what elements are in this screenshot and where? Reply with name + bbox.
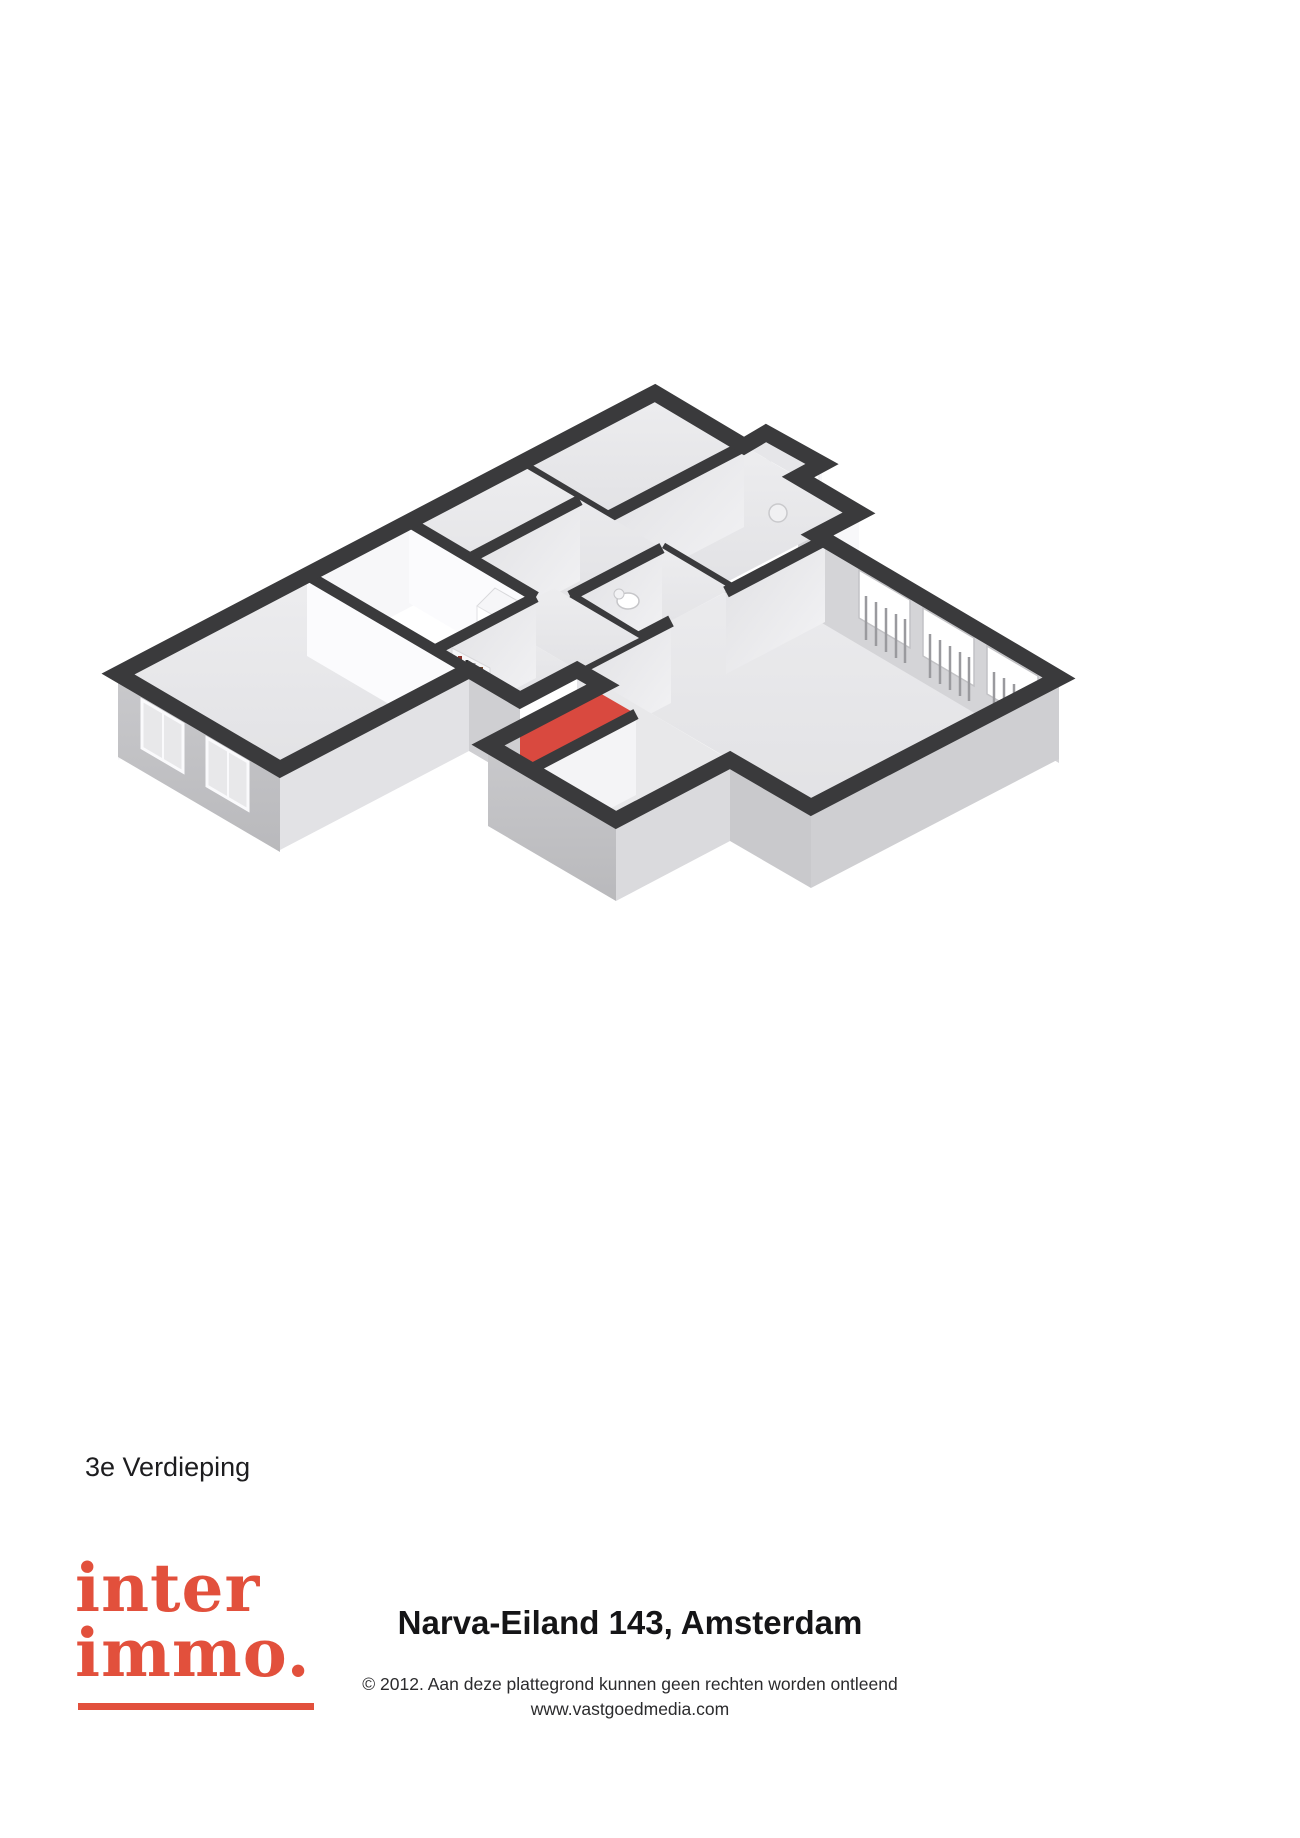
logo-word-1: inter <box>75 1556 311 1621</box>
floorplan-3d-render <box>0 0 1300 1100</box>
agency-logo: inter immo. <box>75 1556 311 1685</box>
address-title: Narva-Eiland 143, Amsterdam <box>330 1604 930 1642</box>
website-text: www.vastgoedmedia.com <box>250 1697 1010 1722</box>
copyright-block: © 2012. Aan deze plattegrond kunnen geen… <box>250 1672 1010 1722</box>
page: 3e Verdieping inter immo. Narva-Eiland 1… <box>0 0 1300 1838</box>
disclaimer-text: © 2012. Aan deze plattegrond kunnen geen… <box>250 1672 1010 1697</box>
round-fixture <box>769 504 787 522</box>
floor-label: 3e Verdieping <box>85 1452 250 1483</box>
